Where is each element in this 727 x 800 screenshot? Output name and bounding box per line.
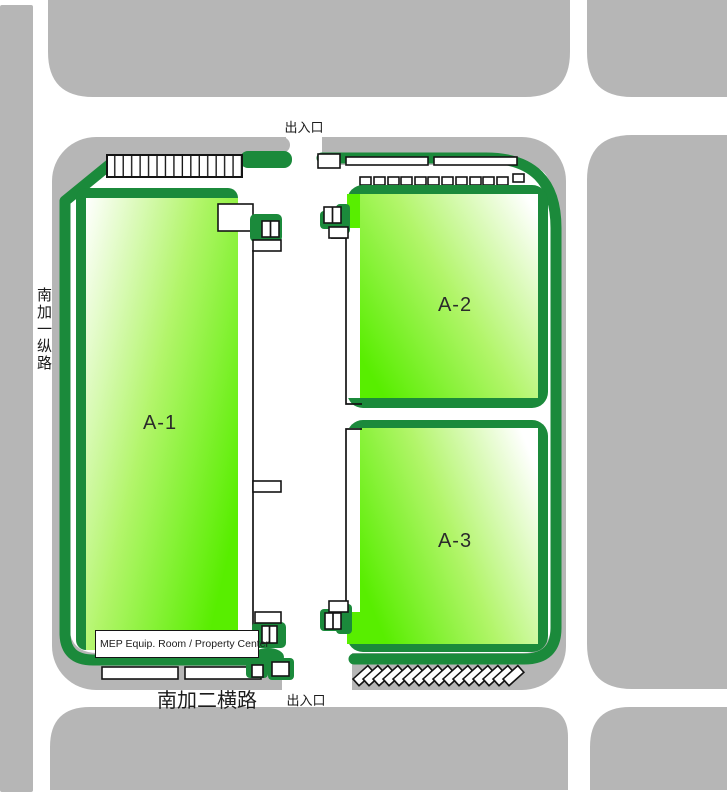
stall [374,177,385,185]
stall [428,177,439,185]
city-block-bottom-center [50,707,568,790]
stall [401,177,412,185]
a1-mid-dock-pad [253,481,281,492]
stall [497,177,508,185]
building-a2-label: A-2 [425,294,485,317]
stall [415,177,426,185]
building-a3-label: A-3 [425,530,485,553]
entrance-top-label: 出入口 [274,117,334,136]
city-block-top-left [48,0,570,97]
city-block-top-right [587,0,727,97]
stall [483,177,494,185]
stall [388,177,399,185]
stall [470,177,481,185]
mep-room-box: MEP Equip. Room / Property Center [95,630,259,658]
gate-box-small [252,665,263,677]
gate-box-large [272,662,289,676]
parking-row-top-left [107,155,242,177]
city-block-left-strip [0,5,33,792]
gray-median-tip [246,137,290,153]
a1-bottom-dock-pad [255,612,281,623]
landscape-median-tip [240,151,292,168]
road-left-label: 南加一纵路 [34,287,54,372]
sidewalk-strip-bottom-1 [102,667,178,679]
site-plan-drawing [0,0,727,800]
sidewalk-strip-top-2 [434,157,517,165]
stall [360,177,371,185]
building-a1-label: A-1 [130,412,190,435]
site-plan: A-1 A-2 A-3 出入口 出入口 南加一纵路 南加二横路 MEP Equi… [0,0,727,800]
road-bottom-label: 南加二横路 [142,684,272,713]
a1-top-dock-pad [253,240,281,251]
stall [442,177,453,185]
guard-booth-top [318,154,340,168]
a3-dock-pad [329,601,348,612]
sidewalk-strip-top-1 [346,157,428,165]
city-block-right-middle [587,135,727,689]
a1-corner-room [218,204,253,231]
mep-room-label: MEP Equip. Room / Property Center [100,638,269,650]
a2-dock-pad [329,227,348,238]
entrance-bottom-label: 出入口 [276,690,336,709]
parking-row-fill [107,155,242,177]
city-block-bottom-right [590,707,727,790]
stall [456,177,467,185]
angled-parking-row [353,666,524,686]
stall [513,174,524,182]
